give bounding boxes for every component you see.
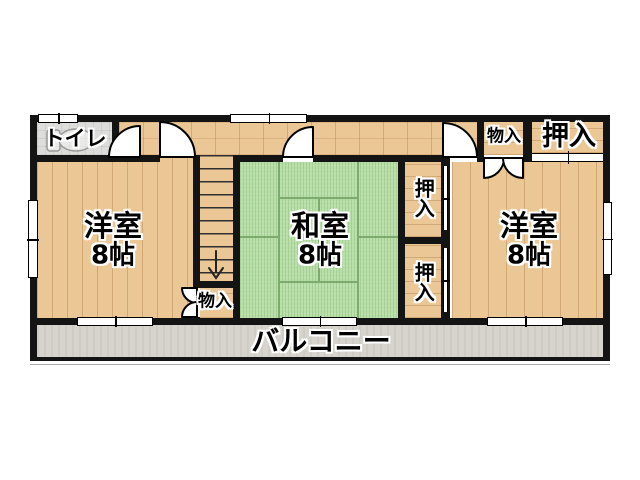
hallway-floor	[119, 122, 477, 155]
tatami-line	[357, 162, 359, 318]
toilet-label: トイレ	[44, 128, 107, 149]
wall-stair-left	[193, 155, 200, 288]
wall-stair-right	[233, 155, 240, 325]
closet-top-right-label: 押入	[542, 123, 596, 151]
western-left-size: 8帖	[91, 243, 135, 270]
wall-japanese-right	[398, 155, 405, 325]
western-right-size: 8帖	[507, 243, 551, 270]
sliding-door-closet-upper	[443, 166, 448, 230]
storage-stairs-label: 物入	[198, 293, 232, 310]
wall-hall-bottom-b	[240, 155, 283, 162]
tatami-line	[280, 281, 357, 283]
wall-stair-left-stub	[193, 317, 200, 325]
wall-closet-divider	[405, 237, 441, 244]
window-western-left	[77, 317, 153, 326]
wall-hall-bottom-c	[313, 155, 443, 162]
window-western-left-side	[28, 200, 38, 278]
window-hallway	[230, 114, 307, 123]
window-western-right-bottom	[487, 317, 563, 326]
western-right-label: 洋室	[500, 212, 558, 242]
floor-plan: トイレ 洋室 8帖 和室 8帖 洋室 8帖 押入 物入 押入 押入 物入 バルコ…	[0, 0, 640, 480]
japanese-room-size: 8帖	[298, 243, 342, 270]
wall-storage-top-left	[477, 115, 484, 162]
sliding-door-closet-lower	[443, 248, 448, 312]
wall-storage-stairs-top	[200, 281, 233, 288]
tatami-line	[278, 162, 280, 318]
closet-upper-label: 押入	[413, 178, 433, 218]
tatami-line	[240, 236, 278, 238]
balcony-label: バルコニー	[251, 328, 390, 357]
closet-lower-label: 押入	[413, 262, 433, 302]
japanese-room-label: 和室	[291, 212, 349, 242]
wall-storage-closet-divider	[523, 115, 532, 162]
window-western-right-side	[603, 202, 612, 275]
western-left-label: 洋室	[84, 212, 142, 242]
storage-top-label: 物入	[487, 128, 521, 145]
balcony-outer-line	[30, 364, 610, 365]
window-toilet	[38, 114, 78, 123]
staircase	[200, 155, 233, 281]
tatami-line	[359, 236, 398, 238]
wall-hall-bottom-a	[30, 155, 160, 162]
sliding-door-closet-top-right	[532, 153, 603, 162]
